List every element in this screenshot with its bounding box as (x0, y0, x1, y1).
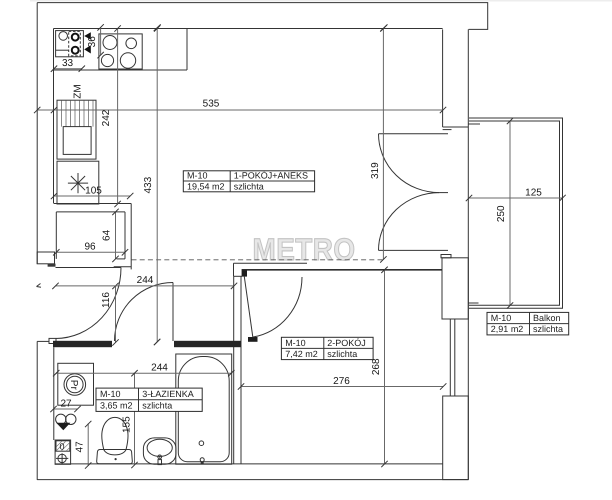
svg-text:36: 36 (87, 36, 98, 48)
svg-text:96: 96 (84, 242, 96, 253)
svg-text:M-10: M-10 (100, 389, 121, 399)
svg-text:433: 433 (143, 176, 154, 193)
svg-text:szlichta: szlichta (533, 324, 563, 334)
svg-text:3,65 m2: 3,65 m2 (100, 401, 133, 411)
svg-text:2-POKÓJ: 2-POKÓJ (327, 338, 366, 348)
svg-text:242: 242 (101, 109, 112, 126)
svg-text:M-10: M-10 (285, 338, 306, 348)
svg-text:33: 33 (62, 58, 74, 69)
svg-text:244: 244 (137, 275, 154, 286)
svg-text:268: 268 (371, 358, 382, 375)
svg-text:ZM: ZM (73, 84, 84, 98)
svg-text:1-POKÓJ+ANEKS: 1-POKÓJ+ANEKS (234, 171, 308, 181)
svg-text:64: 64 (102, 229, 113, 241)
svg-text:Balkon: Balkon (533, 313, 561, 323)
svg-text:19,54 m2: 19,54 m2 (187, 181, 225, 191)
svg-text:M-10: M-10 (187, 171, 208, 181)
svg-text:244: 244 (151, 363, 168, 374)
svg-text:2,91 m2: 2,91 m2 (491, 324, 524, 334)
svg-text:105: 105 (85, 186, 102, 197)
svg-text:7,42 m2: 7,42 m2 (285, 349, 318, 359)
svg-text:szlichta: szlichta (327, 349, 357, 359)
svg-text:155: 155 (121, 416, 132, 433)
svg-text:szlichta: szlichta (142, 401, 172, 411)
svg-text:0: 0 (60, 442, 65, 452)
svg-text:47: 47 (74, 441, 85, 453)
svg-text:116: 116 (101, 292, 112, 308)
svg-text:szlichta: szlichta (234, 181, 264, 191)
svg-text:250: 250 (496, 205, 507, 222)
svg-text:3-ŁAZIENKA: 3-ŁAZIENKA (142, 389, 194, 399)
svg-text:METRO: METRO (253, 232, 356, 267)
svg-text:27: 27 (60, 399, 72, 410)
svg-text:M-10: M-10 (491, 313, 512, 323)
svg-text:125: 125 (525, 188, 542, 199)
svg-text:276: 276 (333, 376, 350, 387)
svg-text:319: 319 (370, 162, 381, 179)
svg-text:535: 535 (203, 99, 220, 110)
svg-text:Pr: Pr (68, 380, 79, 391)
